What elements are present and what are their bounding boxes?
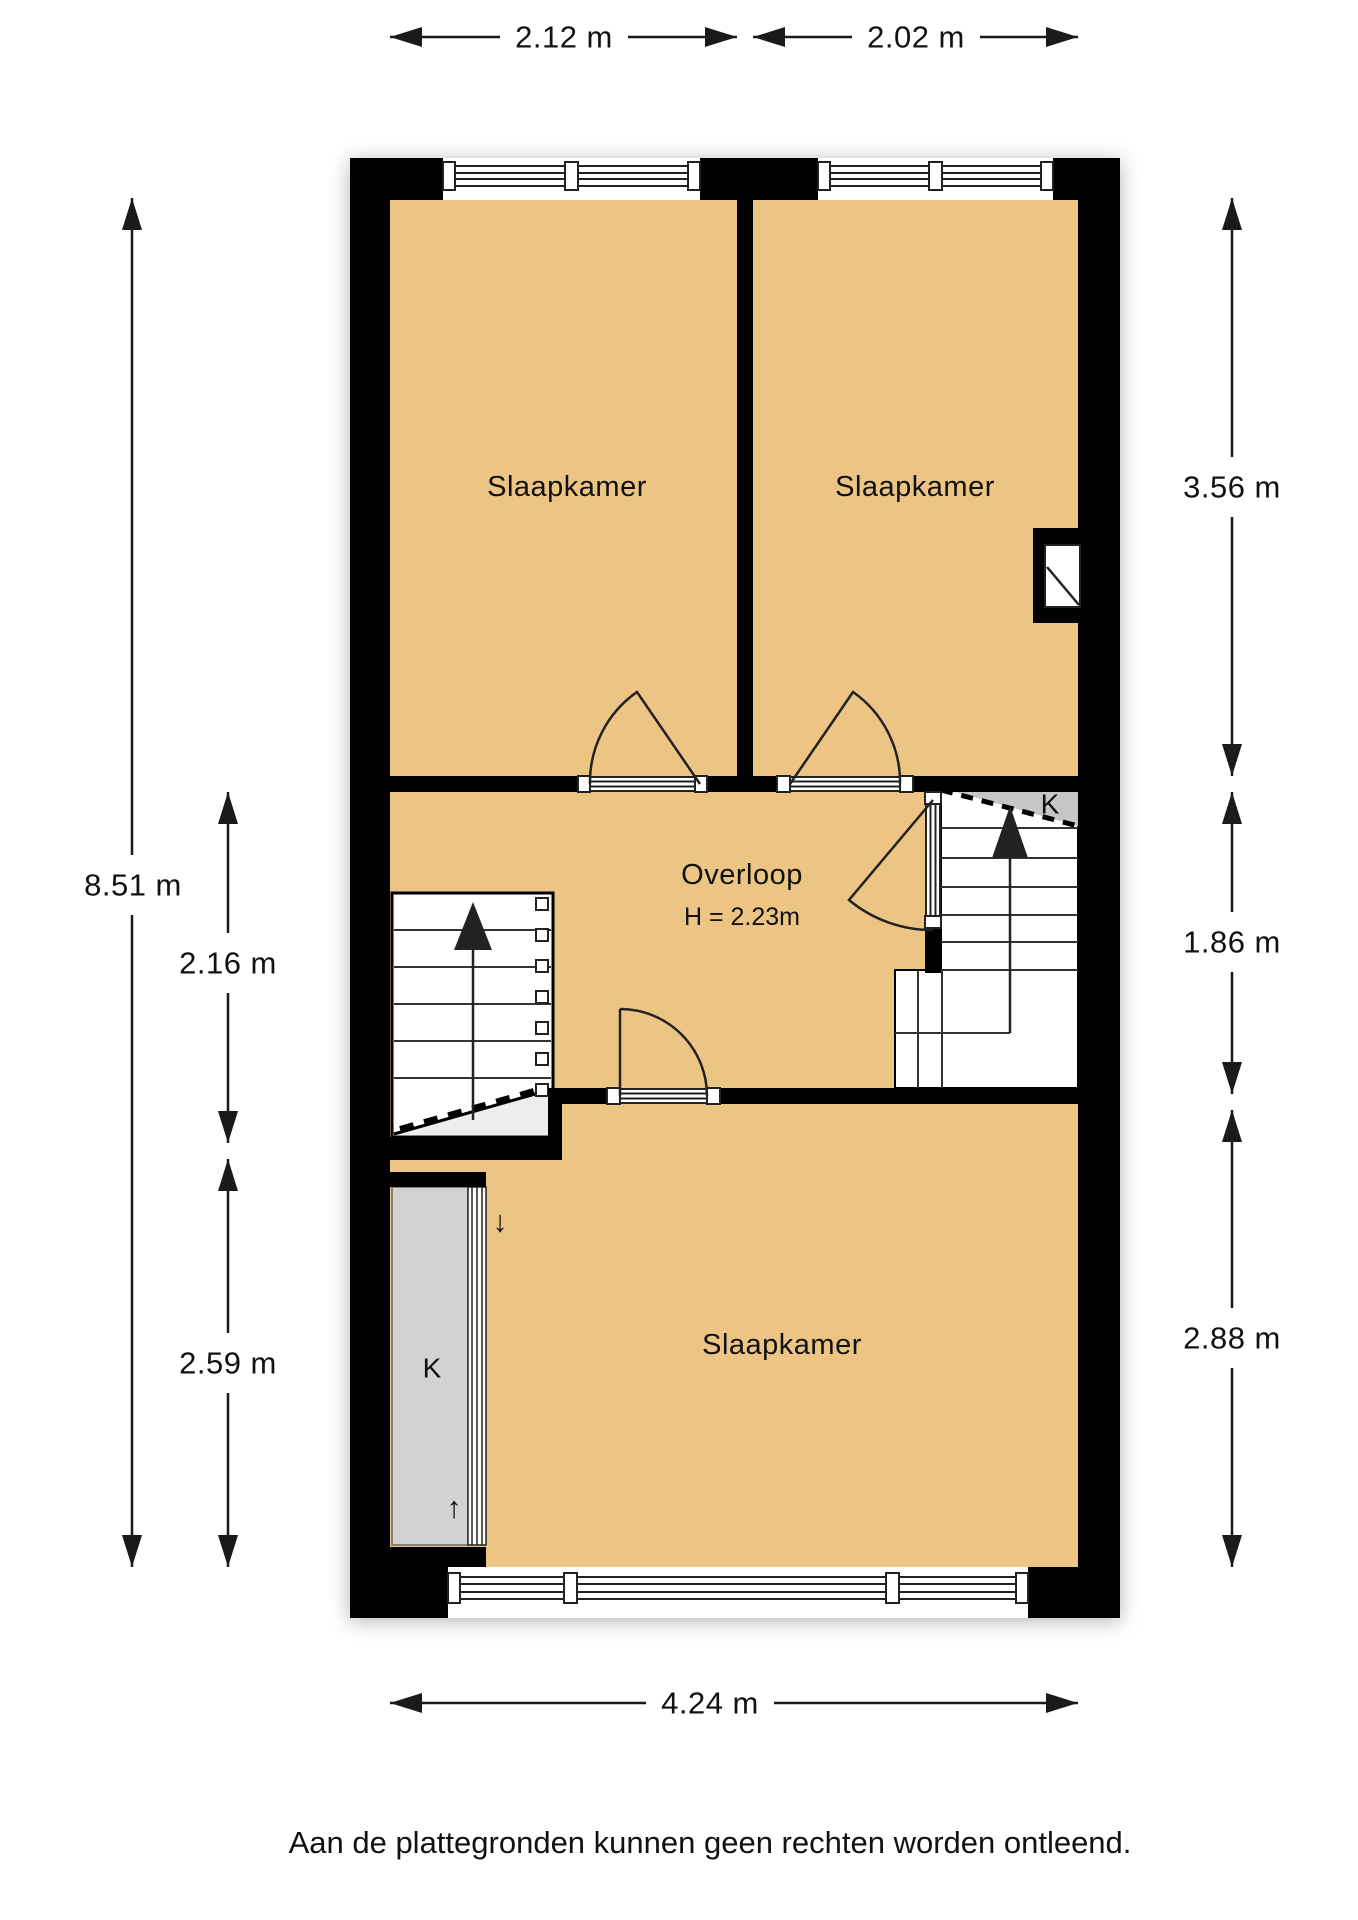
room-label-bedroom-top-right: Slaapkamer <box>835 471 995 503</box>
wall-stair-stub <box>925 928 941 973</box>
room-label-bedroom-bottom: Slaapkamer <box>702 1329 862 1361</box>
wall-left <box>350 158 390 1618</box>
closet-label-under-stairs: K <box>1041 789 1060 820</box>
wall-closet-top <box>390 1172 486 1187</box>
floorplan-page: Slaapkamer Slaapkamer Slaapkamer Overloo… <box>0 0 1358 1920</box>
dimension-left-total: 8.51 m <box>84 198 182 1567</box>
wall-bedroom-divider <box>737 198 753 776</box>
dimension-label-left-bottom: 2.59 m <box>179 1346 277 1381</box>
dimension-label-top-right: 2.02 m <box>867 20 965 55</box>
wall-under-stairs <box>350 1137 562 1160</box>
wall-closet-bottom <box>390 1547 486 1567</box>
closet-label-bottom-left: K <box>423 1353 442 1384</box>
duct-niche <box>1033 528 1082 623</box>
dimension-right-top: 3.56 m <box>1183 198 1281 776</box>
wall-landing-bottom-b <box>720 1088 1078 1104</box>
window-top-right <box>818 158 1053 200</box>
floorplan-canvas: Slaapkamer Slaapkamer Slaapkamer Overloo… <box>0 0 1358 1920</box>
arrow-down-icon: ↓ <box>493 1206 508 1239</box>
window-bottom <box>448 1567 1028 1618</box>
dimension-left-mid: 2.16 m <box>179 792 277 1143</box>
dimension-bottom-total: 4.24 m <box>390 1686 1078 1721</box>
wall-landing-top-a <box>390 776 578 792</box>
wall-landing-top-b <box>707 776 777 792</box>
staircase-left <box>392 893 553 1137</box>
dimension-top-right: 2.02 m <box>753 20 1078 55</box>
dimension-left-bottom: 2.59 m <box>179 1159 277 1567</box>
dimension-label-right-bottom: 2.88 m <box>1183 1321 1281 1356</box>
dimension-label-top-left: 2.12 m <box>515 20 613 55</box>
landing-height-label: H = 2.23m <box>684 903 800 931</box>
arrow-up-icon: ↑ <box>447 1492 462 1525</box>
dimension-label-bottom-total: 4.24 m <box>661 1686 759 1721</box>
dimension-right-mid: 1.86 m <box>1183 792 1281 1094</box>
dimension-label-left-mid: 2.16 m <box>179 946 277 981</box>
wall-connector <box>548 1088 562 1160</box>
dimension-label-right-mid: 1.86 m <box>1183 925 1281 960</box>
dimension-label-right-top: 3.56 m <box>1183 470 1281 505</box>
wall-right <box>1078 158 1120 1618</box>
room-label-bedroom-top-left: Slaapkamer <box>487 471 647 503</box>
window-top-left <box>443 158 700 200</box>
disclaimer-text: Aan de plattegronden kunnen geen rechten… <box>289 1825 1132 1860</box>
room-label-landing: Overloop <box>681 859 803 891</box>
dimension-right-bottom: 2.88 m <box>1183 1110 1281 1567</box>
dimension-label-left-total: 8.51 m <box>84 868 182 903</box>
dimension-top-left: 2.12 m <box>390 20 737 55</box>
